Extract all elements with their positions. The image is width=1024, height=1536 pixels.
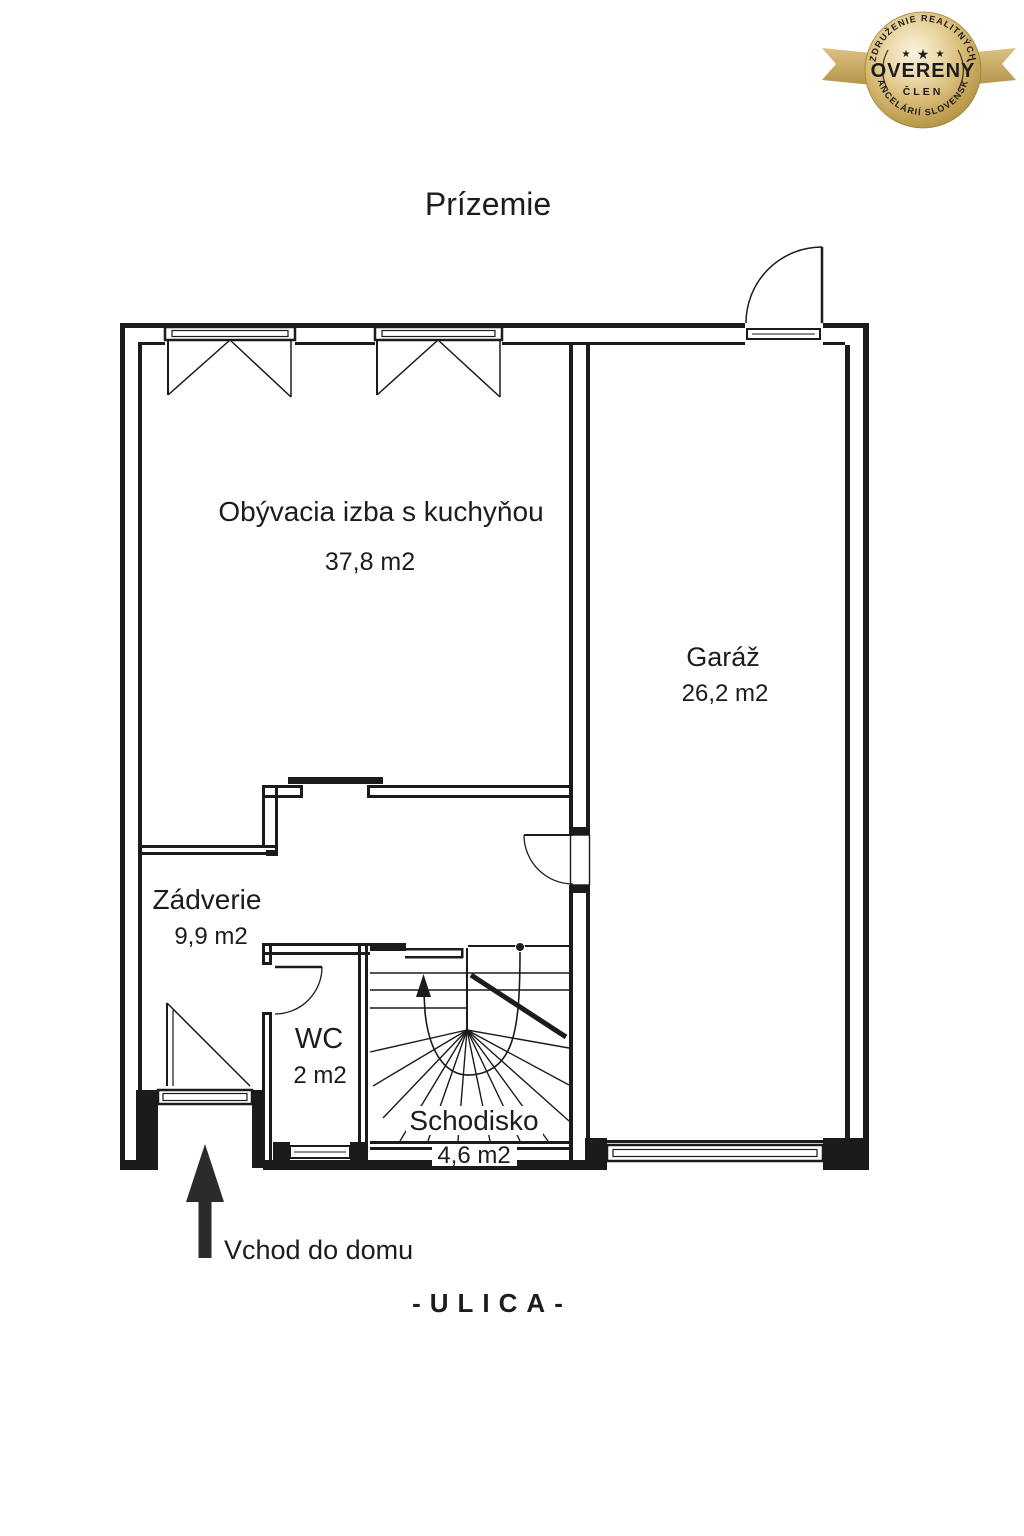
- garage-interior-door: [524, 835, 590, 885]
- window-living-2: [375, 327, 502, 397]
- entrance-arrow-icon: [186, 1144, 224, 1258]
- ribbon-left: [822, 48, 872, 85]
- star-icon: ★: [902, 49, 911, 60]
- wc-door: [275, 967, 322, 1014]
- room-area-hall: 9,9 m2: [174, 923, 247, 950]
- room-label-hall: Zádverie: [153, 884, 262, 915]
- certified-badge: ZDRUŽENIE REALITNÝCH KANCELÁRIÍ SLOVENSK…: [814, 4, 1024, 154]
- garage-gate: [607, 1145, 823, 1161]
- wc-window: [290, 1146, 350, 1158]
- room-area-garage: 26,2 m2: [682, 680, 769, 707]
- entrance-door: [158, 1003, 252, 1104]
- room-area-staircase: 4,6 m2: [437, 1142, 510, 1169]
- garage-exterior-door: [746, 247, 822, 339]
- window-living-1: [165, 327, 295, 397]
- walls-solid: [120, 323, 869, 1170]
- room-label-garage: Garáž: [686, 642, 760, 672]
- star-icon: ★: [936, 49, 945, 60]
- room-area-living: 37,8 m2: [325, 548, 415, 576]
- room-area-wc: 2 m2: [293, 1062, 346, 1089]
- badge-main-text: OVERENÝ: [871, 58, 976, 82]
- stair-walkline-start-dot: [516, 943, 525, 952]
- page-title: Prízemie: [425, 186, 551, 222]
- stair-direction-arrow-icon: [416, 974, 431, 997]
- room-label-staircase: Schodisko: [409, 1105, 538, 1136]
- room-label-wc: WC: [295, 1023, 343, 1055]
- street-label: -ULICA-: [412, 1288, 572, 1318]
- room-label-living: Obývacia izba s kuchyňou: [218, 496, 543, 527]
- floor-plan: Prízemie: [0, 0, 1024, 1536]
- walls-interior: [138, 345, 590, 1160]
- entrance-label: Vchod do domu: [224, 1235, 413, 1265]
- badge-member-text: ČLEN: [903, 85, 944, 98]
